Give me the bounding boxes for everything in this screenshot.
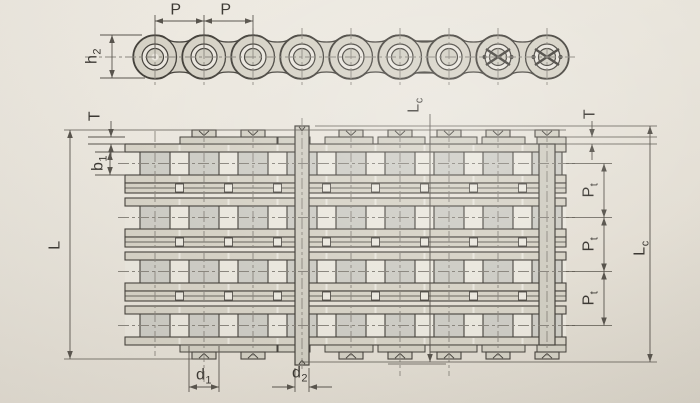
outer-link-plate-bottom	[482, 345, 525, 352]
dim-arrowhead	[309, 384, 317, 390]
outer-link-plate-top	[430, 137, 477, 144]
dim-label-pt-1: Pt	[581, 183, 600, 198]
dim-label-pitch-2: P	[220, 2, 231, 21]
outer-plate-bar	[125, 306, 566, 314]
plate-joint-gap	[421, 292, 429, 300]
outer-link-plate-top	[482, 137, 525, 144]
plate-joint-gap	[372, 292, 380, 300]
outer-link-plate-bottom	[430, 345, 477, 352]
plate-joint-gap	[176, 238, 184, 246]
plate-joint-gap	[274, 184, 282, 192]
plate-joint-gap	[274, 238, 282, 246]
outer-link-plate-top	[537, 137, 566, 144]
plate-joint-gap	[372, 184, 380, 192]
outer-link-plate-bottom	[378, 345, 425, 352]
chain-technical-drawing: P P h2 T b1 L Lc T Pt Pt Pt Lc d1 d2	[0, 0, 700, 403]
outer-plate-bar	[125, 144, 566, 152]
plate-joint-gap	[323, 184, 331, 192]
inner-plate-bar	[125, 175, 566, 183]
plate-joint-gap	[176, 184, 184, 192]
dim-label-d1: d1	[196, 367, 212, 386]
plate-joint-gap	[519, 184, 527, 192]
chain-strand	[125, 144, 566, 193]
plate-joint-gap	[470, 292, 478, 300]
dim-arrowhead	[601, 264, 607, 272]
dim-arrowhead	[155, 18, 163, 24]
dim-arrowhead	[647, 354, 653, 362]
dim-arrowhead	[589, 129, 595, 137]
plate-joint-gap	[519, 238, 527, 246]
plate-joint-gap	[470, 184, 478, 192]
dim-arrowhead	[427, 354, 433, 362]
plate-joint-gap	[421, 184, 429, 192]
dim-label-pt-3: Pt	[581, 291, 600, 306]
dim-arrowhead	[601, 318, 607, 326]
dim-label-t-left: T	[87, 111, 106, 121]
dim-label-lc-top: Lc	[406, 97, 425, 112]
plate-joint-gap	[274, 292, 282, 300]
outer-plate-bar	[125, 252, 566, 260]
plate-joint-gap	[225, 292, 233, 300]
outer-link-plate-bottom	[325, 345, 373, 352]
outer-link-plate-top	[378, 137, 425, 144]
dim-label-pitch-1: P	[170, 2, 181, 21]
inner-plate-bar	[125, 337, 566, 345]
outer-link-plate-top	[325, 137, 373, 144]
plan-view	[118, 118, 576, 384]
plate-joint-gap	[323, 238, 331, 246]
dim-arrowhead	[67, 351, 73, 359]
dim-arrowhead	[108, 129, 114, 137]
dim-arrowhead	[601, 210, 607, 218]
dim-arrowhead	[287, 384, 295, 390]
outer-link-plate-bottom	[180, 345, 277, 352]
outer-link-plate-top	[180, 137, 277, 144]
dim-arrowhead	[601, 164, 607, 172]
plate-joint-gap	[323, 292, 331, 300]
plate-joint-gap	[470, 238, 478, 246]
dim-arrowhead	[196, 18, 204, 24]
dim-arrowhead	[108, 144, 114, 152]
dim-arrowhead	[245, 18, 253, 24]
dim-label-b1: b1	[90, 155, 109, 171]
dim-label-pt-2: Pt	[581, 237, 600, 252]
dim-arrowhead	[204, 18, 212, 24]
dim-arrowhead	[601, 218, 607, 226]
dim-arrowhead	[601, 272, 607, 280]
drawing-canvas	[0, 0, 700, 403]
dim-arrowhead	[109, 35, 115, 43]
dim-arrowhead	[109, 70, 115, 78]
plate-joint-gap	[225, 238, 233, 246]
chain-strand	[125, 252, 566, 301]
plate-joint-gap	[225, 184, 233, 192]
dim-arrowhead	[67, 130, 73, 138]
plate-joint-gap	[176, 292, 184, 300]
outer-plate-bar	[125, 198, 566, 206]
dim-arrowhead	[589, 144, 595, 152]
dim-label-lc-right: Lc	[632, 240, 651, 255]
dim-label-t-right: T	[582, 109, 601, 119]
plate-joint-gap	[519, 292, 527, 300]
dim-arrowhead	[647, 126, 653, 134]
side-view	[85, 15, 575, 86]
dim-arrowhead	[211, 384, 219, 390]
dim-label-h2: h2	[84, 48, 103, 64]
plate-joint-gap	[372, 238, 380, 246]
inner-plate-bar	[125, 283, 566, 291]
outer-link-plate-bottom	[537, 345, 566, 352]
dim-label-d2: d2	[292, 365, 308, 384]
dim-label-l: L	[47, 240, 66, 249]
inner-plate-bar	[125, 229, 566, 237]
plate-joint-gap	[421, 238, 429, 246]
chain-strand	[125, 198, 566, 247]
